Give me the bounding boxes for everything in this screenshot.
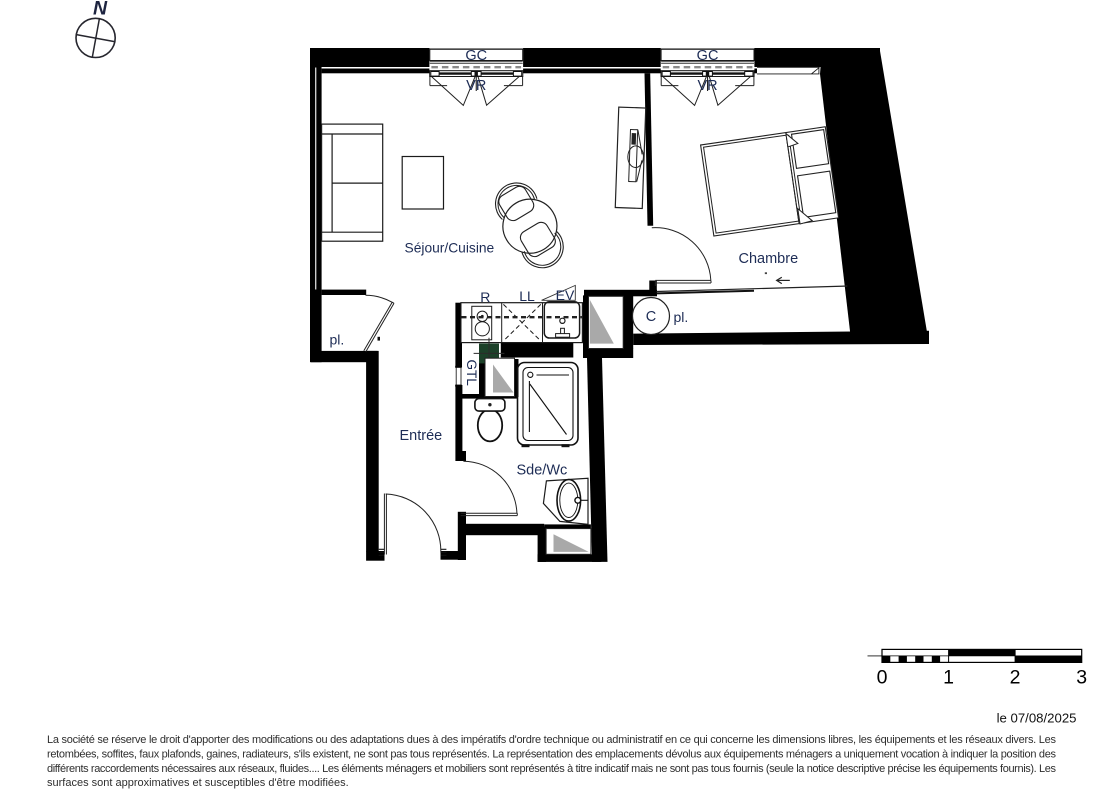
svg-text:pl.: pl. <box>674 309 689 325</box>
svg-text:différents raccordements néces: différents raccordements nécessaires aux… <box>47 763 1056 775</box>
svg-text:GC: GC <box>465 48 487 64</box>
svg-text:LL: LL <box>519 288 535 304</box>
svg-text:VR: VR <box>466 78 486 94</box>
svg-text:1: 1 <box>943 667 954 689</box>
svg-text:C: C <box>646 309 656 325</box>
svg-text:La société se réserve le droit: La société se réserve le droit d'apporte… <box>47 734 1057 746</box>
svg-text:GC: GC <box>697 48 719 64</box>
svg-text:VR: VR <box>697 78 717 94</box>
svg-text:3: 3 <box>1076 667 1087 689</box>
svg-text:N: N <box>93 0 108 20</box>
svg-text:retombées, soffites, faux plaf: retombées, soffites, faux plafonds, gain… <box>47 748 1057 760</box>
svg-text:R: R <box>480 289 490 305</box>
svg-text:2: 2 <box>1010 667 1021 689</box>
svg-text:Sde/Wc: Sde/Wc <box>517 463 568 479</box>
svg-text:le 07/08/2025: le 07/08/2025 <box>997 711 1077 726</box>
svg-text:pl.: pl. <box>330 332 345 348</box>
svg-text:Entrée: Entrée <box>400 428 443 444</box>
svg-text:EV: EV <box>556 287 575 303</box>
svg-text:Chambre: Chambre <box>739 251 799 267</box>
svg-text:surfaces sont approximatives e: surfaces sont approximatives et suscepti… <box>47 777 349 789</box>
svg-text:0: 0 <box>877 667 888 689</box>
svg-text:Séjour/Cuisine: Séjour/Cuisine <box>405 241 495 256</box>
svg-text:GTL: GTL <box>464 360 479 387</box>
